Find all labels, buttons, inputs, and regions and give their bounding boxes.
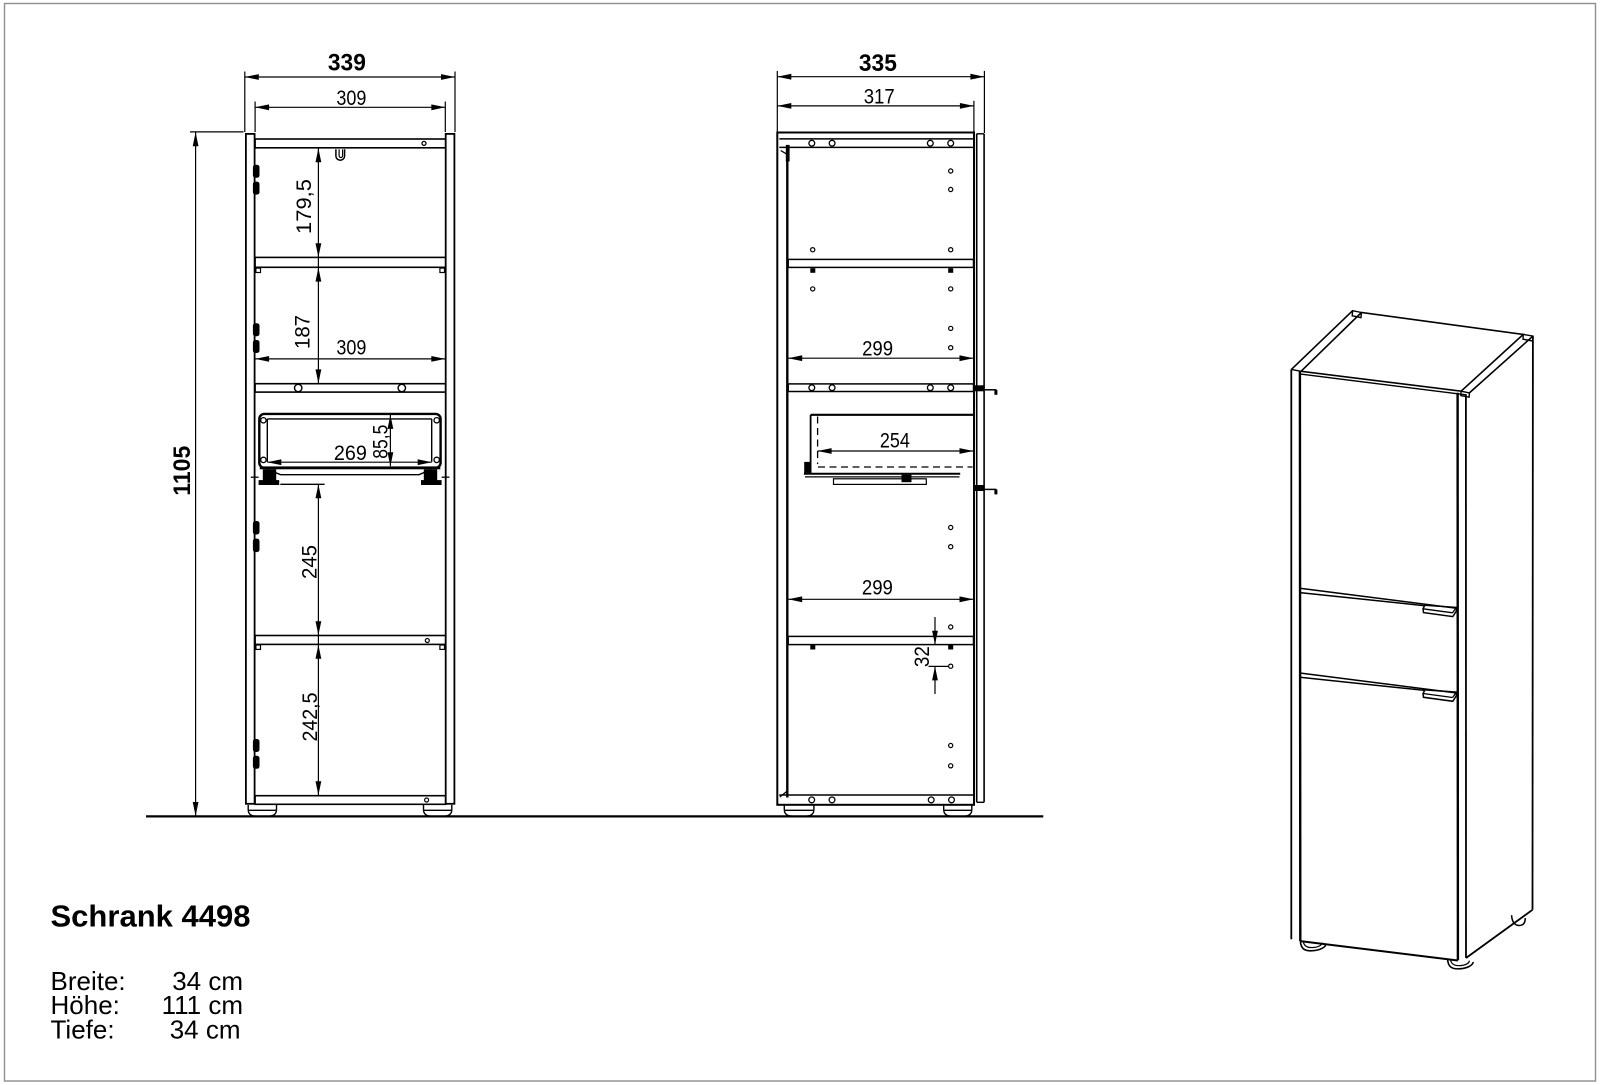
- svg-text:179,5: 179,5: [293, 179, 316, 234]
- svg-text:85,5: 85,5: [370, 425, 393, 459]
- svg-text:187: 187: [292, 315, 315, 349]
- svg-text:242,5: 242,5: [299, 693, 322, 742]
- svg-text:299: 299: [862, 577, 893, 600]
- svg-text:1105: 1105: [169, 446, 196, 496]
- svg-text:339: 339: [328, 50, 366, 77]
- svg-text:245: 245: [298, 545, 321, 579]
- svg-text:309: 309: [336, 337, 366, 360]
- svg-text:269: 269: [334, 442, 367, 465]
- svg-text:Schrank 4498: Schrank 4498: [51, 899, 251, 934]
- svg-text:299: 299: [862, 338, 893, 361]
- svg-text:Tiefe:: Tiefe:: [51, 1015, 115, 1045]
- svg-text:335: 335: [859, 50, 897, 77]
- svg-text:254: 254: [880, 429, 910, 452]
- svg-text:317: 317: [864, 86, 895, 109]
- svg-text:309: 309: [336, 87, 366, 110]
- svg-text:32: 32: [911, 646, 934, 667]
- svg-text:34 cm: 34 cm: [170, 1015, 241, 1045]
